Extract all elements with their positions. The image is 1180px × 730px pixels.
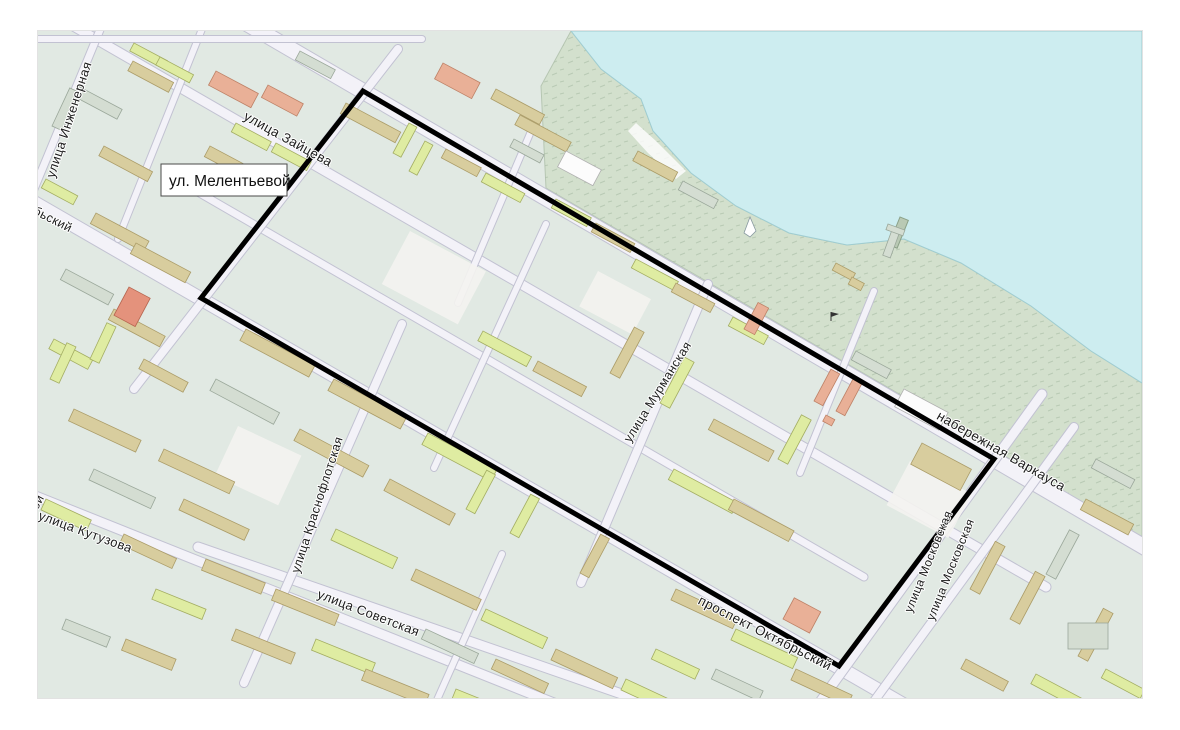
street-label-box: ул. Мелентьевой — [161, 164, 291, 196]
map-page: улица Инженернаяулица Зайцевабьскийойули… — [0, 0, 1180, 730]
street-label-box-text: ул. Мелентьевой — [169, 173, 291, 190]
building — [1068, 623, 1108, 649]
map-canvas: улица Инженернаяулица Зайцевабьскийойули… — [38, 31, 1142, 698]
city-map[interactable]: улица Инженернаяулица Зайцевабьскийойули… — [37, 30, 1143, 699]
